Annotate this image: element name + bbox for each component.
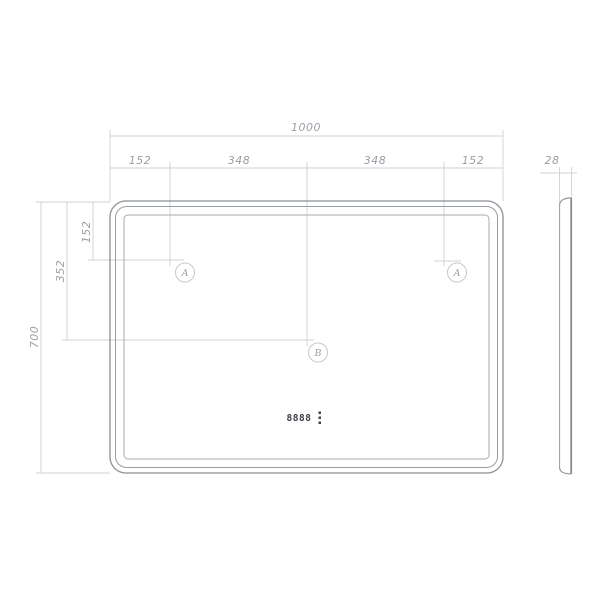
dim-width-segment-3-label: 348 bbox=[364, 154, 387, 167]
technical-drawing: 1000 152 348 348 152 700 352 152 28 8888 bbox=[0, 0, 600, 600]
marker-b-label: B bbox=[314, 348, 322, 359]
drawing-canvas: 1000 152 348 348 152 700 352 152 28 8888 bbox=[0, 0, 600, 600]
dim-width-segment-1-label: 152 bbox=[129, 154, 152, 167]
dimension-labels: 1000 152 348 348 152 700 352 152 28 bbox=[28, 121, 560, 348]
side-top-edge bbox=[560, 198, 572, 206]
marker-b: B bbox=[309, 343, 328, 362]
marker-a-right: A bbox=[448, 263, 467, 282]
dim-width-segment-2-label: 348 bbox=[228, 154, 251, 167]
mirror-side-view bbox=[560, 198, 572, 475]
dim-height-total-label: 700 bbox=[28, 326, 41, 349]
dim-width-segment-4-label: 152 bbox=[462, 154, 485, 167]
dim-thickness-label: 28 bbox=[545, 154, 560, 167]
dim-height-top-label: 152 bbox=[80, 221, 93, 244]
mirror-middle-frame bbox=[116, 207, 498, 468]
dim-height-mid-label: 352 bbox=[54, 260, 67, 283]
marker-a-left: A bbox=[176, 263, 195, 282]
marker-a-right-label: A bbox=[453, 268, 461, 279]
clock-digits: 8888 bbox=[287, 413, 312, 424]
side-bottom-edge bbox=[560, 467, 572, 474]
dim-width-total-label: 1000 bbox=[291, 121, 321, 134]
touch-sensor-icon bbox=[319, 412, 322, 425]
marker-a-left-label: A bbox=[181, 268, 189, 279]
clock-display: 8888 bbox=[287, 412, 321, 425]
